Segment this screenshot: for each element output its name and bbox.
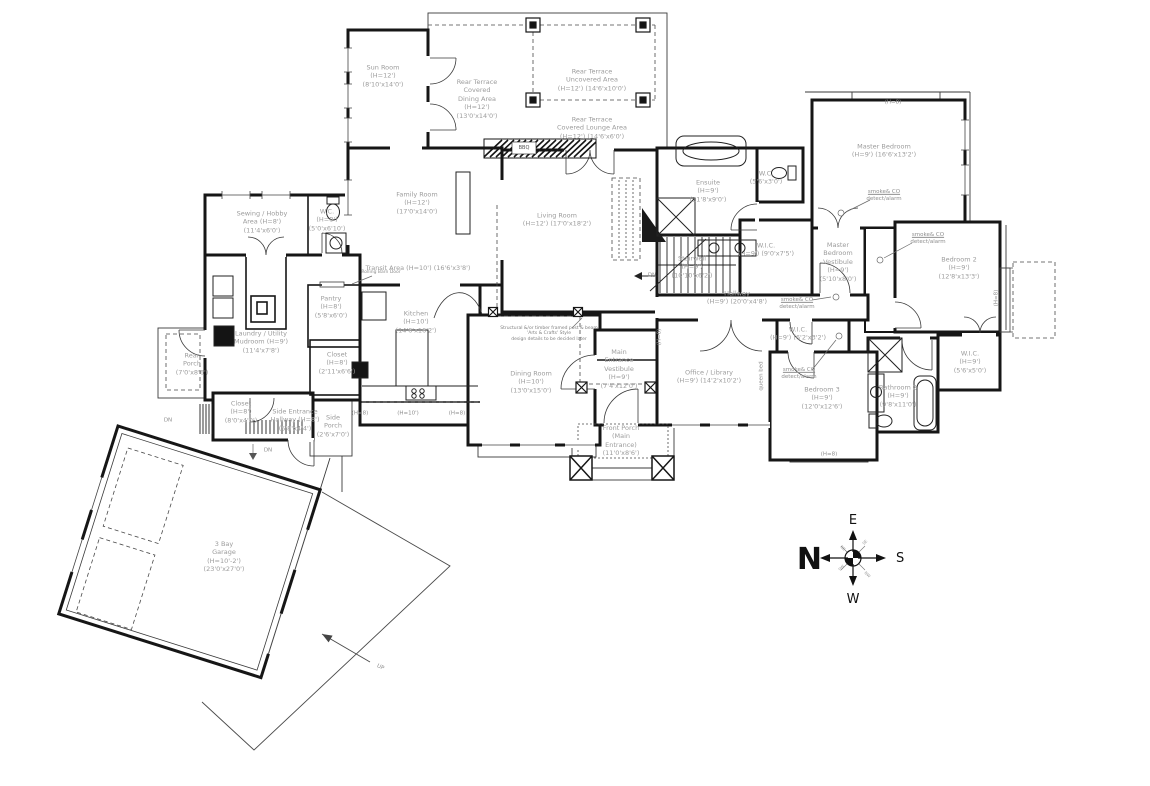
garage (56, 425, 324, 679)
annotation-h8-bedroom3-bay: (H=8) (821, 451, 838, 458)
room-label-office: Office / Library(H=9') (14'2'x10'2') (677, 369, 741, 386)
compass-rose: N E S W NE SE SW NW (797, 513, 904, 607)
annotation-smoke-co-bedroom2: smoke& COdetect/alarm (910, 232, 945, 246)
annotation-h8-kitchen-left: (H=8) (352, 410, 369, 417)
annotation-smoke-co-master: smoke& COdetect/alarm (866, 189, 901, 203)
annotation-queen-bed: queen bed (758, 361, 765, 390)
room-label-closet-rear: Closet(H=8')(8'0'x4'0') (225, 399, 258, 424)
annotation-h10-kitchen: (H=10') (397, 410, 419, 417)
room-label-bedroom3: Bedroom 3(H=9')(12'0'x12'6') (802, 385, 843, 410)
annotation-barn-door: Rolling Barn Door (361, 270, 400, 276)
annotation-smoke-co-bedroom3: smoke& COdetect/alarm (781, 367, 816, 381)
annotation-h8-kitchen-right: (H=8) (449, 410, 466, 417)
room-label-rear-porch: RearPorch(7'0'x8'6') (176, 351, 209, 376)
annotation-h8-vestibule: (H=8) (656, 329, 663, 346)
annotation-h8-bedroom2-bay: (H=8) (993, 290, 1000, 307)
annotation-h8-master-bay: (H=8) (885, 99, 902, 106)
room-label-living-room: Living Room(H=12') (17'0'x18'2') (523, 212, 591, 229)
room-label-bedroom3-wic: W.I.C.(H=9') (6'2'x3'2') (770, 326, 826, 343)
compass-s: S (896, 551, 904, 566)
compass-se: SE (861, 538, 868, 545)
annotation-dn-side: DN (264, 447, 272, 454)
annotation-structural-note: Structural &/or timber framed post & bea… (500, 326, 598, 342)
room-label-main-vestibule: MainEntranceVestibule(H=9')(7'4'x12'0') (601, 348, 638, 390)
compass-w: W (847, 592, 860, 607)
room-label-pantry: Pantry(H=8')(5'8'x6'0') (315, 294, 348, 319)
compass-e: E (849, 513, 857, 528)
room-label-bedroom2: Bedroom 2(H=9')(12'8'x13'3') (939, 255, 980, 280)
room-label-closet-kitchen: Closet(H=8')(2'11'x6'6') (319, 350, 356, 375)
room-label-dining-room: Dining Room(H=10')(13'0'x15'0') (510, 369, 552, 394)
compass-n: N (797, 542, 822, 577)
room-label-master-wic: W.I.C.(H=9') (9'0'x7'5') (738, 242, 794, 259)
room-label-bathroom2: Bathroom 2(H=9')(9'8'x11'0') (879, 383, 917, 408)
room-label-laundry: Laundry / UtilityMudroom (H=9')(11'4'x7'… (234, 329, 288, 354)
room-label-ensuite-wc: W.C.(5'6'x3'0') (750, 170, 783, 187)
compass-nw: NW (863, 570, 871, 578)
room-label-hallway: Hallway(H=9') (20'0'x4'8') (707, 290, 767, 307)
room-label-terrace-uncovered: Rear TerraceUncovered Area(H=12') (14'6'… (558, 67, 626, 92)
room-label-garage: 3 BayGarage(H=10'-2')(23'0'x27'0') (204, 540, 245, 574)
room-label-front-porch: Front Porch(MainEntrance)(11'0'x8'6') (603, 424, 640, 458)
compass-sw: SW (837, 564, 845, 572)
room-label-family-room: Family Room(H=12')(17'0'x14'0') (396, 190, 438, 215)
room-label-wc-main: W.C.(H=8')(5'0'x6'10') (309, 207, 346, 232)
room-label-side-hallway: Side EntranceHallway (H=8')(5'8'x4'4') (270, 407, 319, 432)
room-label-master-bedroom: Master Bedroom(H=9') (16'6'x13'2') (852, 143, 916, 160)
annotation-dn-stairs: DN (648, 272, 656, 279)
room-label-master-vestibule: MasterBedroomVestibule(H=9')(5'10'x8'0') (820, 241, 857, 283)
room-label-stairwell: Stairwell(H=9')(10'10'x6'2') (672, 254, 713, 279)
room-label-bedroom2-wic: W.I.C.(H=9')(5'6'x5'0') (954, 349, 987, 374)
room-label-terrace-dining: Rear TerraceCoveredDining Area(H=12')(13… (457, 78, 498, 120)
room-label-sewing: Sewing / HobbyArea (H=8')(11'4'x6'0') (237, 209, 288, 234)
room-label-side-porch: SidePorch(2'6'x7'0') (317, 413, 350, 438)
annotation-bbq: BBQ (517, 145, 532, 152)
floor-plan-canvas: N E S W NE SE SW NW Sun Room(H=12')(8'10… (0, 0, 1150, 786)
room-label-terrace-lounge: Rear TerraceCovered Lounge Area(H=12') (… (557, 115, 627, 140)
room-label-kitchen: Kitchen(H=10')(14'6'x16'2') (396, 309, 437, 334)
annotation-dn-rear: DN (164, 417, 172, 424)
annotation-smoke-co-hallway: smoke& COdetect/alarm (779, 297, 814, 311)
room-label-sunroom: Sun Room(H=12')(8'10'x14'0') (363, 63, 404, 88)
room-label-ensuite: Ensuite(H=9')(11'8'x9'0') (690, 178, 727, 203)
